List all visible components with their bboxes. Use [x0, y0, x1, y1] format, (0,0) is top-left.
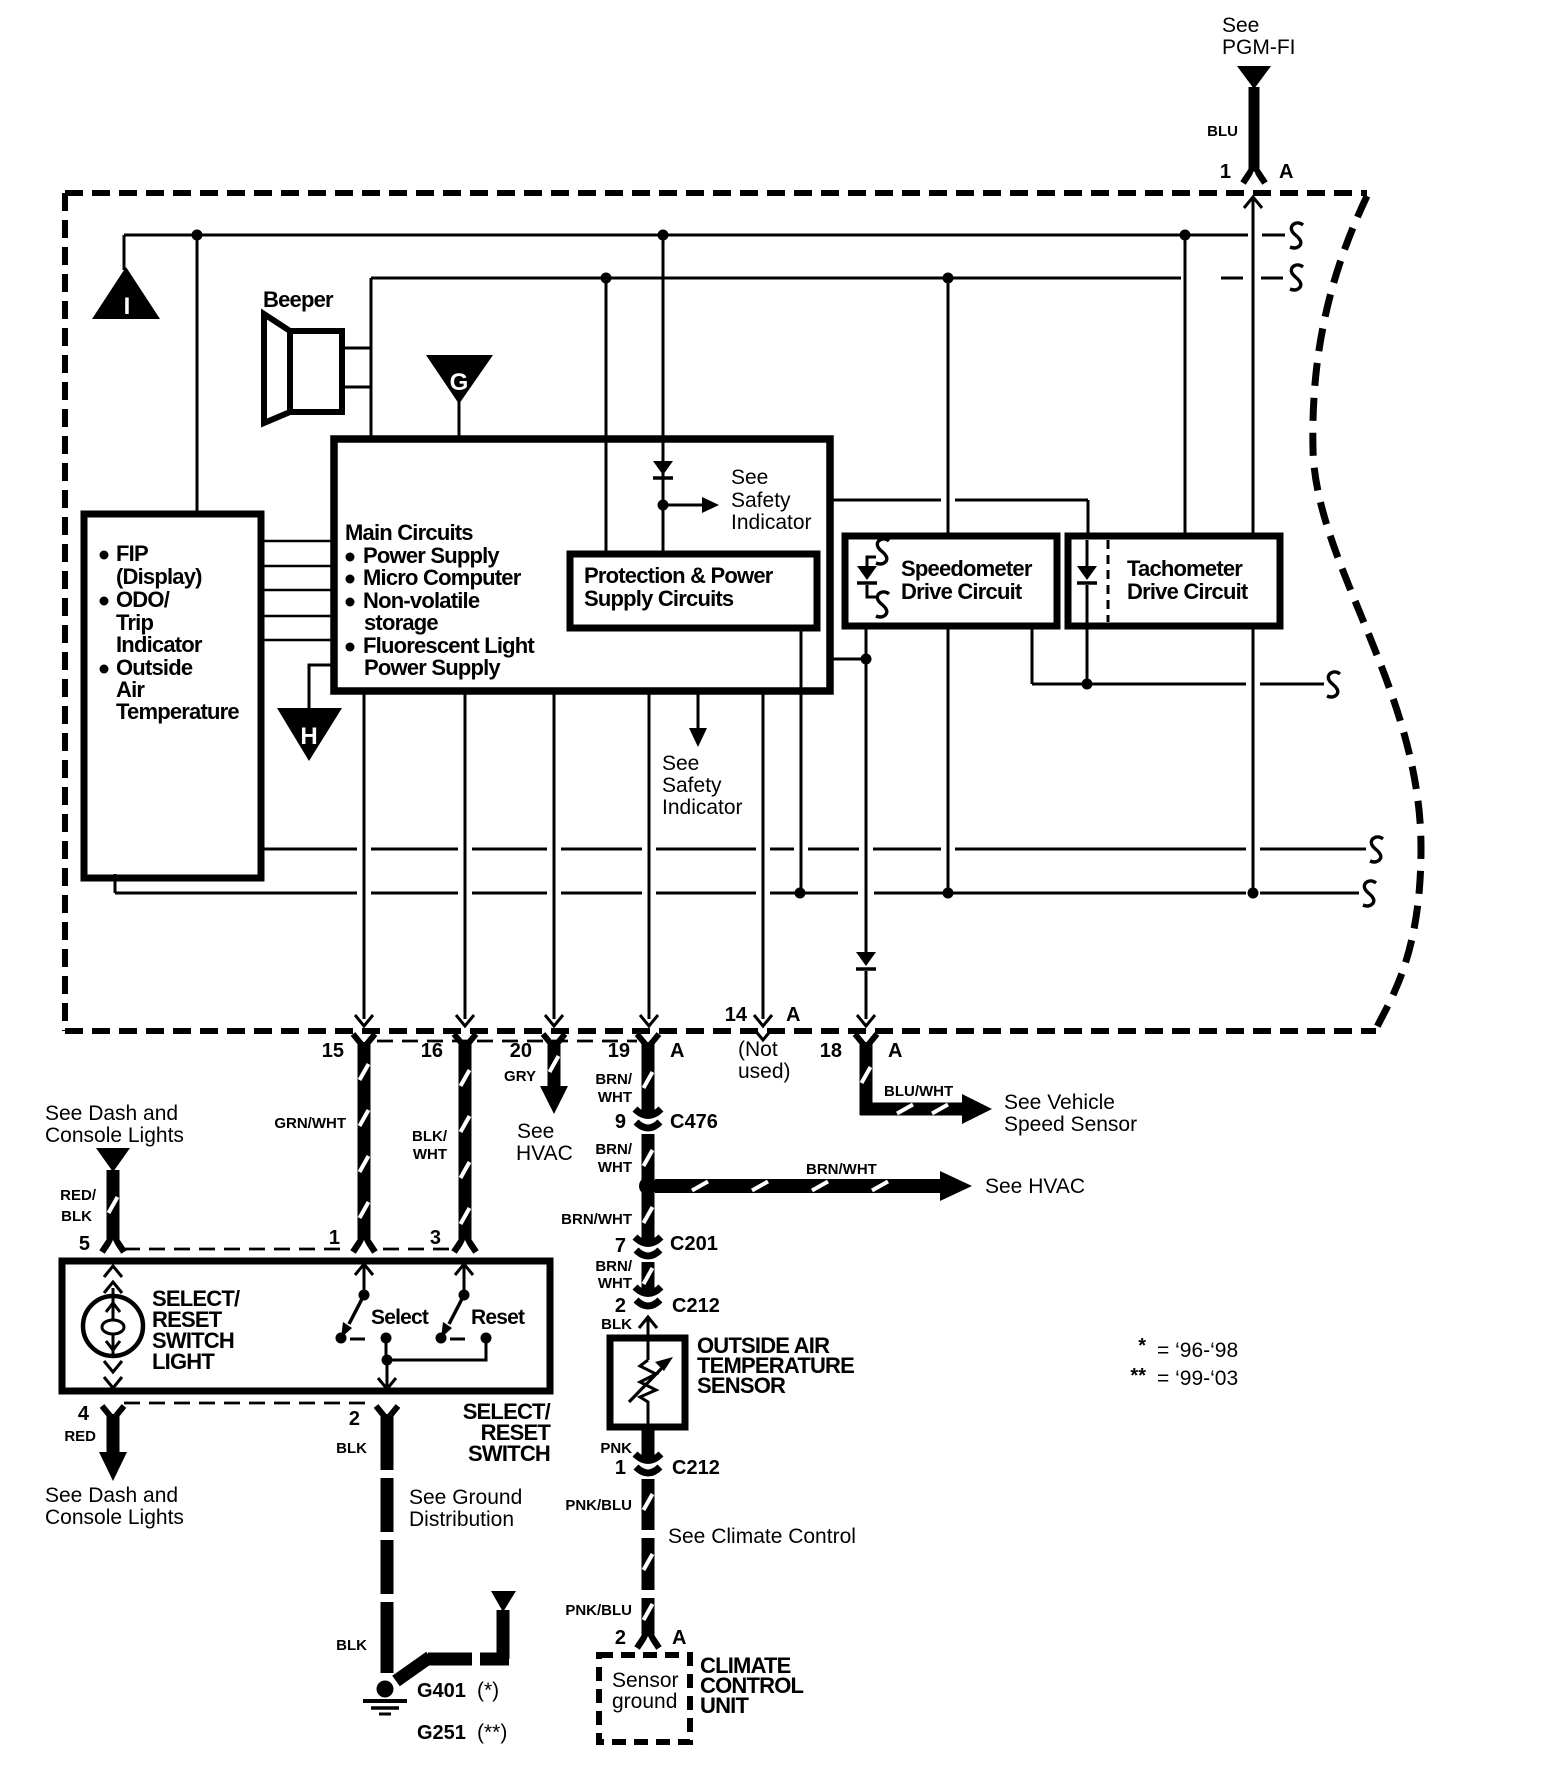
svg-text:BLK: BLK: [601, 1316, 632, 1333]
svg-text:See Dash and: See Dash and: [45, 1102, 178, 1125]
svg-text:3: 3: [430, 1227, 441, 1249]
svg-text:BLK: BLK: [336, 1440, 367, 1457]
svg-text:HVAC: HVAC: [516, 1142, 573, 1165]
svg-text:G401: G401: [417, 1680, 466, 1702]
svg-text:LIGHT: LIGHT: [152, 1349, 215, 1374]
svg-text:2: 2: [615, 1295, 626, 1317]
svg-text:Tachometer: Tachometer: [1127, 556, 1243, 581]
svg-text:C476: C476: [670, 1111, 718, 1133]
svg-text:Indicator: Indicator: [116, 632, 203, 657]
svg-text:Console Lights: Console Lights: [45, 1506, 184, 1529]
svg-text:Temperature: Temperature: [116, 699, 239, 724]
svg-text:Speedometer: Speedometer: [901, 556, 1033, 581]
svg-text:Power Supply: Power Supply: [364, 655, 501, 680]
svg-text:1: 1: [1220, 161, 1231, 183]
svg-text:Indicator: Indicator: [662, 796, 743, 819]
svg-text:A: A: [888, 1040, 902, 1062]
svg-text:7: 7: [615, 1235, 626, 1257]
svg-text:BLK: BLK: [61, 1208, 92, 1225]
svg-text:PGM-FI: PGM-FI: [1222, 36, 1296, 59]
svg-text:BRN/WHT: BRN/WHT: [806, 1161, 877, 1178]
svg-text:BRN/: BRN/: [595, 1258, 632, 1275]
svg-text:A: A: [1279, 161, 1293, 183]
svg-text:WHT: WHT: [413, 1146, 447, 1163]
svg-text:See: See: [1222, 14, 1259, 37]
svg-text:Supply Circuits: Supply Circuits: [584, 586, 734, 611]
svg-text:See: See: [517, 1120, 554, 1143]
svg-text:(**): (**): [477, 1721, 507, 1744]
svg-text:PNK/BLU: PNK/BLU: [565, 1497, 632, 1514]
svg-text:GRN/WHT: GRN/WHT: [274, 1115, 346, 1132]
svg-text:Reset: Reset: [471, 1306, 525, 1329]
svg-text:9: 9: [615, 1111, 626, 1133]
svg-text:Micro Computer: Micro Computer: [363, 565, 522, 590]
svg-text:Beeper: Beeper: [263, 287, 334, 312]
svg-text:storage: storage: [364, 610, 438, 635]
svg-text:Drive Circuit: Drive Circuit: [1127, 579, 1249, 604]
svg-text:2: 2: [349, 1408, 360, 1430]
svg-text:18: 18: [820, 1040, 842, 1062]
svg-text:Sensor: Sensor: [612, 1669, 679, 1692]
svg-text:2: 2: [615, 1627, 626, 1649]
svg-text:**: **: [1130, 1365, 1146, 1387]
svg-text:Safety: Safety: [731, 489, 791, 512]
svg-text:PNK: PNK: [600, 1440, 632, 1457]
svg-text:BLU: BLU: [1207, 123, 1238, 140]
svg-text:Distribution: Distribution: [409, 1508, 514, 1531]
svg-text:H: H: [300, 723, 317, 750]
svg-text:(Not: (Not: [738, 1038, 778, 1061]
svg-text:GRY: GRY: [504, 1068, 536, 1085]
svg-text:See: See: [662, 752, 699, 775]
svg-text:SENSOR: SENSOR: [697, 1373, 786, 1398]
svg-text:C201: C201: [670, 1233, 718, 1255]
svg-text:Indicator: Indicator: [731, 511, 812, 534]
svg-text:BRN/WHT: BRN/WHT: [561, 1211, 632, 1228]
svg-text:4: 4: [78, 1403, 90, 1425]
svg-text:14: 14: [725, 1004, 748, 1026]
svg-text:Safety: Safety: [662, 774, 722, 797]
svg-text:WHT: WHT: [598, 1275, 632, 1292]
svg-text:= ‘96-‘98: = ‘96-‘98: [1157, 1339, 1238, 1362]
svg-text:C212: C212: [672, 1457, 720, 1479]
svg-text:G: G: [450, 369, 469, 396]
svg-text:See Climate Control: See Climate Control: [668, 1525, 856, 1548]
svg-text:*: *: [1138, 1335, 1146, 1357]
svg-text:A: A: [670, 1040, 684, 1062]
svg-text:ground: ground: [612, 1690, 677, 1713]
svg-text:BRN/: BRN/: [595, 1141, 632, 1158]
svg-text:See Vehicle: See Vehicle: [1004, 1091, 1115, 1114]
svg-text:used): used): [738, 1060, 791, 1083]
svg-text:WHT: WHT: [598, 1089, 632, 1106]
svg-text:Protection & Power: Protection & Power: [584, 563, 774, 588]
svg-text:Speed Sensor: Speed Sensor: [1004, 1113, 1137, 1136]
svg-text:Drive Circuit: Drive Circuit: [901, 579, 1023, 604]
svg-text:See HVAC: See HVAC: [985, 1175, 1085, 1198]
svg-text:G251: G251: [417, 1722, 466, 1744]
svg-text:BLK/: BLK/: [412, 1128, 448, 1145]
svg-text:SWITCH: SWITCH: [468, 1441, 550, 1466]
svg-text:PNK/BLU: PNK/BLU: [565, 1602, 632, 1619]
svg-text:BLK: BLK: [336, 1637, 367, 1654]
svg-text:See: See: [731, 466, 768, 489]
svg-text:(Display): (Display): [116, 564, 202, 589]
svg-text:Console Lights: Console Lights: [45, 1124, 184, 1147]
svg-text:ODO/: ODO/: [116, 587, 170, 612]
svg-text:Select: Select: [371, 1306, 429, 1329]
svg-text:19: 19: [608, 1040, 630, 1062]
svg-text:5: 5: [79, 1233, 90, 1255]
svg-text:1: 1: [615, 1457, 626, 1479]
svg-text:See Ground: See Ground: [409, 1486, 522, 1509]
svg-text:A: A: [786, 1004, 800, 1026]
svg-text:= ‘99-‘03: = ‘99-‘03: [1157, 1367, 1238, 1390]
svg-text:(*): (*): [477, 1679, 499, 1702]
svg-text:UNIT: UNIT: [700, 1693, 749, 1718]
svg-text:I: I: [124, 293, 131, 320]
svg-text:WHT: WHT: [598, 1159, 632, 1176]
svg-text:FIP: FIP: [116, 541, 148, 566]
svg-text:16: 16: [421, 1040, 443, 1062]
svg-text:RED: RED: [64, 1428, 96, 1445]
svg-text:Main Circuits: Main Circuits: [345, 520, 473, 545]
svg-text:A: A: [672, 1627, 686, 1649]
svg-text:See Dash and: See Dash and: [45, 1484, 178, 1507]
svg-text:1: 1: [329, 1227, 340, 1249]
svg-text:15: 15: [322, 1040, 344, 1062]
svg-text:C212: C212: [672, 1295, 720, 1317]
svg-text:BRN/: BRN/: [595, 1071, 632, 1088]
svg-text:BLU/WHT: BLU/WHT: [884, 1083, 953, 1100]
svg-text:RED/: RED/: [60, 1187, 97, 1204]
svg-text:20: 20: [510, 1040, 532, 1062]
